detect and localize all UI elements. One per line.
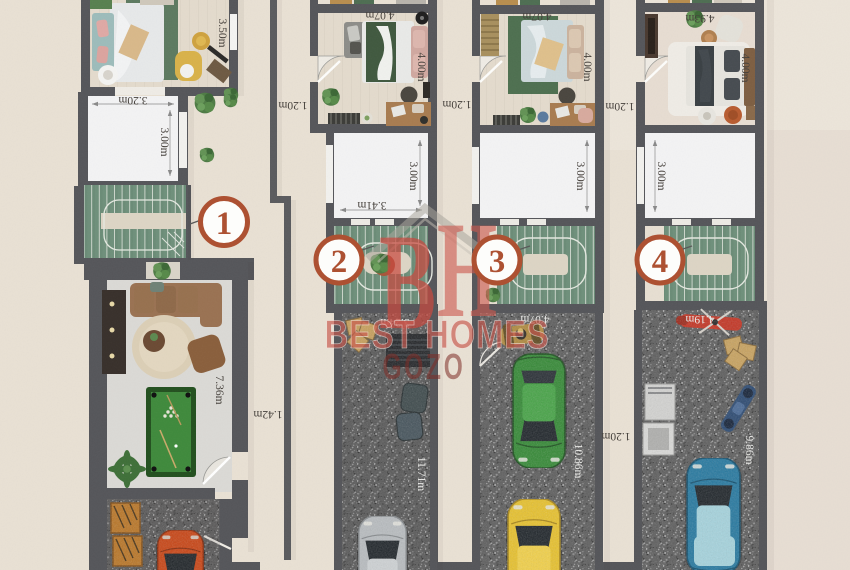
svg-text:4: 4: [652, 244, 669, 280]
svg-text:2: 2: [331, 244, 348, 280]
svg-text:GOZO: GOZO: [383, 346, 466, 387]
svg-text:1: 1: [216, 206, 233, 242]
svg-text:3: 3: [489, 244, 506, 280]
